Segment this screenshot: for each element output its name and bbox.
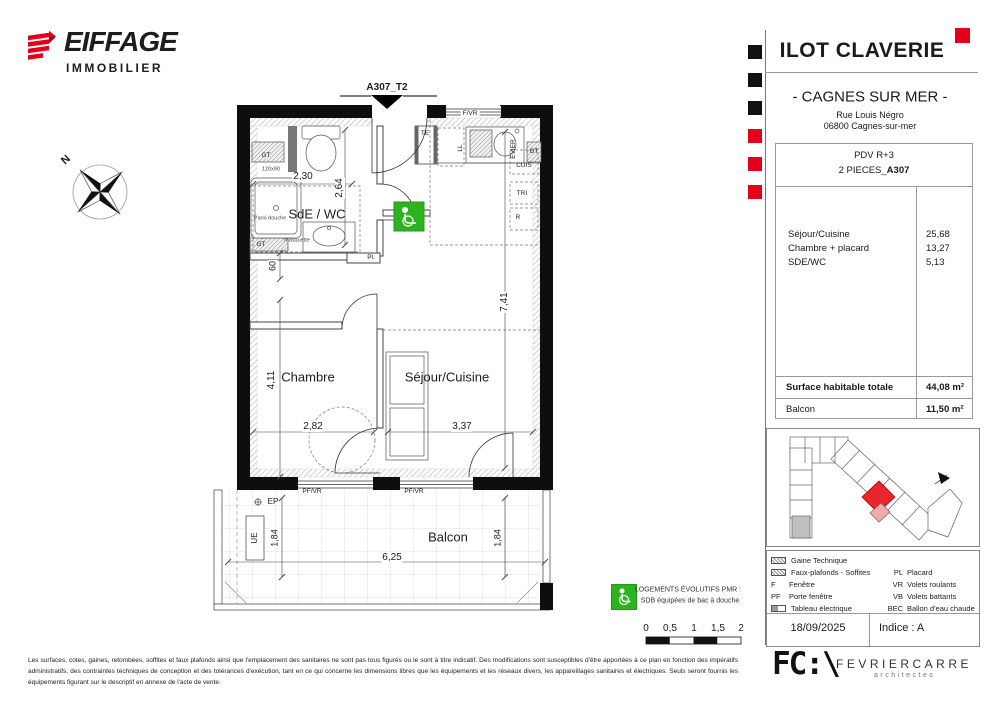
architect-subtitle: architectes [874, 672, 935, 679]
pmr-note-line1: LOGEMENTS ÉVOLUTIFS PMR : [635, 587, 741, 594]
room-row-area: 13,27 [926, 243, 950, 254]
legend-tableau-electrique: Tableau électrique [791, 604, 852, 613]
architect-logo: FC:\ [772, 646, 839, 682]
project-address-1: Rue Louis Négro [836, 110, 904, 120]
project-title: ILOT CLAVERIE [780, 39, 945, 63]
dim-sejour-width: 3,37 [451, 422, 472, 432]
unit-table-header-line [776, 186, 972, 187]
dim-balcon-depth-left: 1,84 [271, 528, 280, 548]
marker-square-red-1 [748, 129, 762, 143]
abbr-vr: VR [881, 580, 903, 589]
marker-square-black-1 [748, 45, 762, 59]
revision-date: 18/09/2025 [767, 622, 869, 634]
dim-chambre-depth: 4,11 [267, 370, 277, 391]
scale-label-05: 0,5 [663, 624, 677, 634]
legend-faux-plafonds: Faux-plafonds - Soffites [791, 568, 870, 577]
scale-label-15: 1,5 [711, 624, 725, 634]
legend-porte-fenetre: PFPorte fenêtre [771, 592, 832, 601]
room-label-chambre: Chambre [281, 371, 334, 384]
legend-ballon-eau-chaude: BECBallon d'eau chaude [881, 604, 975, 613]
legend-gaine-technique: Gaine Technique [791, 556, 847, 565]
window-label-pfvr-2: PF/VR [402, 489, 425, 496]
dim-balcon-depth-right: 1,84 [494, 528, 503, 548]
total-row-area: 44,08 m² [926, 382, 964, 393]
brand-subtitle: IMMOBILIER [66, 61, 163, 75]
scale-label-0: 0 [643, 624, 649, 634]
legend-volets-battants: VBVolets battants [881, 592, 956, 601]
tableau-electrique-icon [771, 605, 786, 612]
scale-bar [646, 637, 741, 644]
gt-top-right-label: GT [529, 149, 538, 156]
ep-label: EP [268, 498, 279, 506]
tri-label: TRI [517, 191, 527, 198]
label-fenetre: Fenêtre [789, 580, 815, 589]
room-row-area: 5,13 [926, 257, 945, 268]
pmr-note-line2: SDB équipées de bac à douche [641, 598, 739, 605]
project-address-2: 06800 Cagnes-sur-mer [824, 121, 917, 131]
balcony-structure [214, 490, 550, 610]
faux-plafond-icon [771, 569, 786, 576]
abbr-pf: PF [771, 592, 785, 601]
project-city: - CAGNES SUR MER - [792, 89, 947, 106]
label-ballon-eau-chaude: Ballon d'eau chaude [907, 604, 975, 613]
architect-name: FEVRIERCARRE [836, 657, 972, 671]
date-indice-divider [869, 613, 870, 646]
dim-sde-width: 2,30 [292, 172, 313, 182]
room-label-sejour: Séjour/Cuisine [405, 371, 490, 384]
unit-type: 2 PIECES_A307 [776, 165, 972, 176]
room-row-label: Chambre + placard [788, 243, 869, 254]
room-row-area: 25,68 [926, 229, 950, 240]
legend-date-divider [767, 613, 979, 614]
legend-placard: PLPlacard [881, 568, 932, 577]
pmr-legend-icon [611, 584, 637, 610]
scale-label-2: 2 [738, 624, 744, 634]
unit-id: A307 [887, 165, 910, 176]
dim-sde-depth: 2,64 [335, 177, 345, 198]
balcon-row-area: 11,50 m² [926, 404, 964, 415]
dim-hall: 60 [269, 260, 278, 272]
legend-box: Gaine Technique Faux-plafonds - Soffites… [766, 550, 980, 647]
unit-table-total-line [776, 376, 972, 377]
unit-info-table: PDV R+3 2 PIECES_A307 Séjour/Cuisine 25,… [775, 143, 973, 419]
balcon-row-label: Balcon [786, 404, 815, 415]
kitchen-fixtures [386, 127, 540, 460]
gt-top-left-label: GT [261, 153, 270, 160]
room-label-sde-wc: SdE / WC [288, 208, 345, 221]
marker-square-black-3 [748, 101, 762, 115]
marker-square-red-2 [748, 157, 762, 171]
key-plan-frame [766, 428, 980, 547]
abbr-f: F [771, 580, 785, 589]
pmr-marker-icon [394, 202, 424, 231]
eiffage-logo-icon [26, 24, 62, 64]
abbr-pl: PL [881, 568, 903, 577]
total-row-label: Surface habitable totale [786, 382, 893, 393]
room-label-balcon: Balcon [428, 531, 468, 544]
room-row-label: SDE/WC [788, 257, 826, 268]
unit-table-balcon-line [776, 398, 972, 399]
dim-balcon-width: 6,25 [381, 553, 402, 563]
abbr-bec: BEC [881, 604, 903, 613]
label-porte-fenetre: Porte fenêtre [789, 592, 832, 601]
label-volets-roulants: Volets roulants [907, 580, 956, 589]
gaine-technique-icon [771, 557, 786, 564]
masquette-label: masquette [284, 238, 310, 244]
dim-sejour-depth: 7,41 [500, 291, 510, 312]
r-label: R [516, 215, 521, 222]
revision-indice: Indice : A [879, 622, 924, 634]
legend-volets-roulants: VRVolets roulants [881, 580, 956, 589]
unit-type-prefix: 2 PIECES_ [839, 165, 887, 176]
shower-size-label: 120x90 [262, 167, 280, 173]
gt-bottom-left-label: GT [256, 242, 265, 249]
placard-label: Pl. [367, 255, 375, 262]
window-label-pfvr-1: PF/VR [300, 489, 323, 496]
abbr-vb: VB [881, 592, 903, 601]
marker-square-red-3 [748, 185, 762, 199]
plan-sheet: A307_T2 F/VR TE LL EVIER GT CUIS TRI R G… [0, 0, 1000, 706]
unit-level: PDV R+3 [776, 150, 972, 161]
paroi-douche-label: Paroi douche [254, 216, 286, 222]
cuis-label: CUIS [516, 163, 532, 170]
room-row-label: Séjour/Cuisine [788, 229, 850, 240]
legal-disclaimer: Les surfaces, cotes, gaines, retombées, … [28, 655, 738, 688]
dim-chambre-width: 2,82 [302, 422, 323, 432]
legend-fenetre: FFenêtre [771, 580, 815, 589]
label-placard: Placard [907, 568, 932, 577]
entrance-label: A307_T2 [366, 83, 407, 93]
brand-name: EIFFAGE [64, 26, 177, 58]
ll-label: LL [458, 144, 465, 151]
title-underline [765, 72, 978, 73]
unit-table-column-line [916, 186, 917, 418]
ue-label: UE [251, 532, 259, 543]
window-label-fvr: F/VR [461, 111, 480, 118]
marker-square-black-2 [748, 73, 762, 87]
title-red-square [955, 28, 970, 43]
te-label: TE [421, 131, 429, 138]
scale-label-1: 1 [691, 624, 697, 634]
label-volets-battants: Volets battants [907, 592, 956, 601]
evier-label: EVIER [511, 139, 518, 159]
